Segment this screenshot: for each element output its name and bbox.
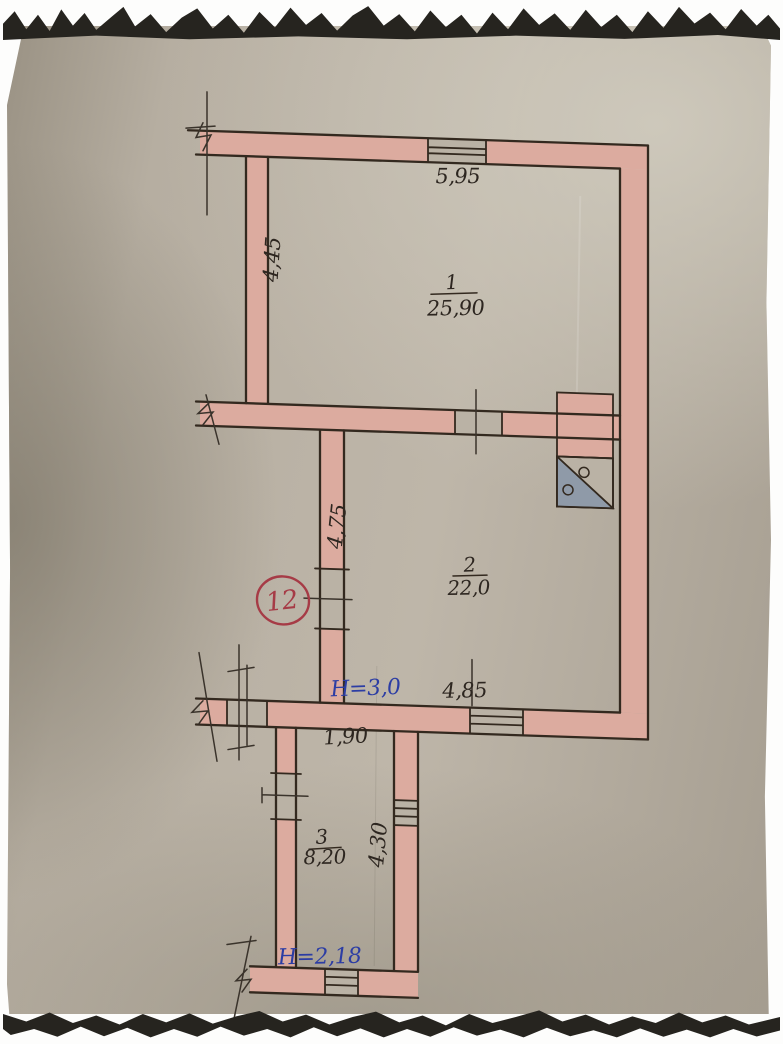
- wall-right: [620, 169, 648, 714]
- door-room1-room2: [455, 410, 502, 436]
- chimney-column: [557, 392, 613, 458]
- dim-room1-height: 4,45: [258, 236, 285, 284]
- floor-plan-drawing: 5,95 1 25,90 4,45 4,75 2 22,0 4,85 1,90 …: [0, 0, 783, 1044]
- window-room3-bottom: [325, 969, 358, 996]
- vent-room3-right: [394, 800, 418, 826]
- room2-area: 22,0: [446, 575, 491, 600]
- wall-left-room3: [276, 727, 296, 968]
- room1-number: 1: [445, 270, 459, 294]
- wall-inner-vertical: [320, 430, 344, 704]
- window-room2-bottom: [470, 708, 523, 736]
- room1-area: 25,90: [425, 296, 485, 321]
- wall-right-room3: [394, 731, 418, 972]
- window-room1-top: [428, 138, 486, 164]
- dim-room2-width: 4,85: [441, 678, 488, 703]
- room3-area: 8,20: [303, 844, 347, 869]
- dim-room3-width: 1,90: [322, 723, 369, 749]
- dim-room2-height: 4,75: [323, 502, 352, 551]
- room2-number: 2: [462, 552, 477, 576]
- stove-icon: [557, 456, 613, 508]
- door-room3-left: [276, 773, 296, 820]
- apartment-number: 12: [264, 585, 300, 618]
- floor-plan-photo: 5,95 1 25,90 4,45 4,75 2 22,0 4,85 1,90 …: [0, 0, 783, 1044]
- dim-room1-width: 5,95: [435, 164, 481, 188]
- room3-ceiling-height: H=2,18: [276, 944, 362, 971]
- dim-room3-height: 4,30: [364, 821, 392, 869]
- apartment-badge: 12: [257, 576, 309, 626]
- room2-ceiling-height: H=3,0: [329, 675, 402, 703]
